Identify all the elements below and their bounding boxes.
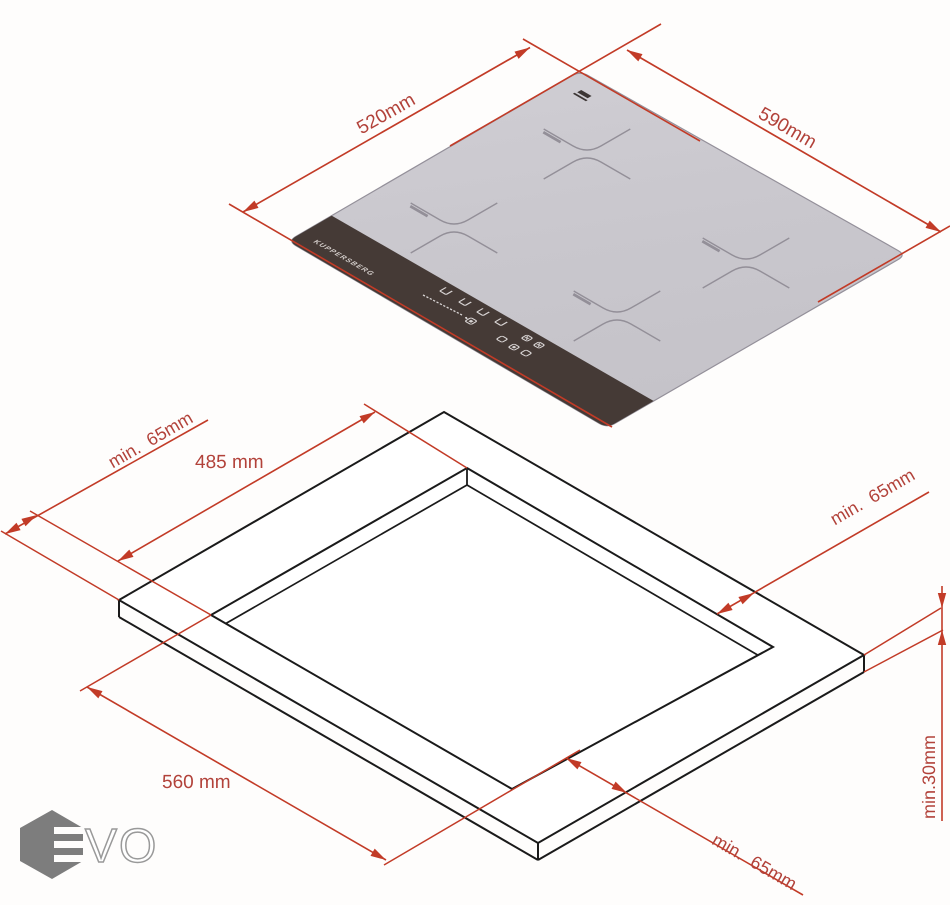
svg-text:VO: VO <box>85 820 158 873</box>
svg-text:560 mm: 560 mm <box>162 772 231 793</box>
svg-text:min.30mm: min.30mm <box>919 735 939 819</box>
svg-text:485 mm: 485 mm <box>195 452 264 473</box>
